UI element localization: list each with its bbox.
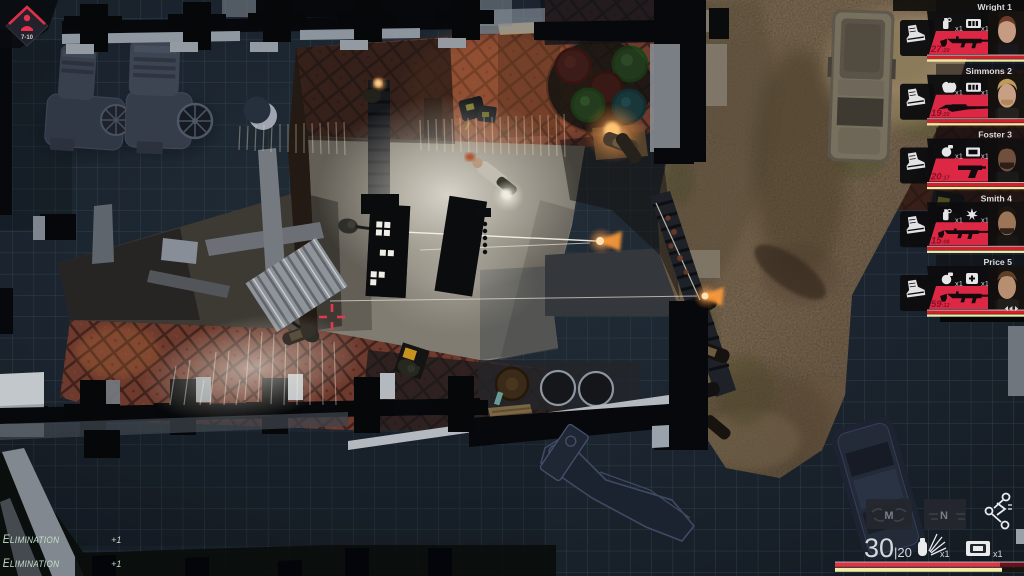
svg-text:M: M xyxy=(884,510,893,522)
svg-text:Price 5: Price 5 xyxy=(984,257,1013,267)
svg-text:x1: x1 xyxy=(940,549,950,559)
svg-text:ELIMINATION: ELIMINATION xyxy=(3,558,60,571)
svg-text:N: N xyxy=(940,510,948,522)
svg-text:+1: +1 xyxy=(111,535,121,545)
svg-text:Smith 4: Smith 4 xyxy=(981,193,1013,203)
svg-text:Foster 3: Foster 3 xyxy=(978,130,1012,140)
svg-text:7-10: 7-10 xyxy=(21,35,34,41)
svg-text:Simmons 2: Simmons 2 xyxy=(966,66,1013,76)
svg-text:Wright 1: Wright 1 xyxy=(977,2,1012,12)
svg-text:x1: x1 xyxy=(993,549,1003,559)
svg-text:ELIMINATION: ELIMINATION xyxy=(3,534,60,547)
svg-text:+1: +1 xyxy=(111,559,121,569)
